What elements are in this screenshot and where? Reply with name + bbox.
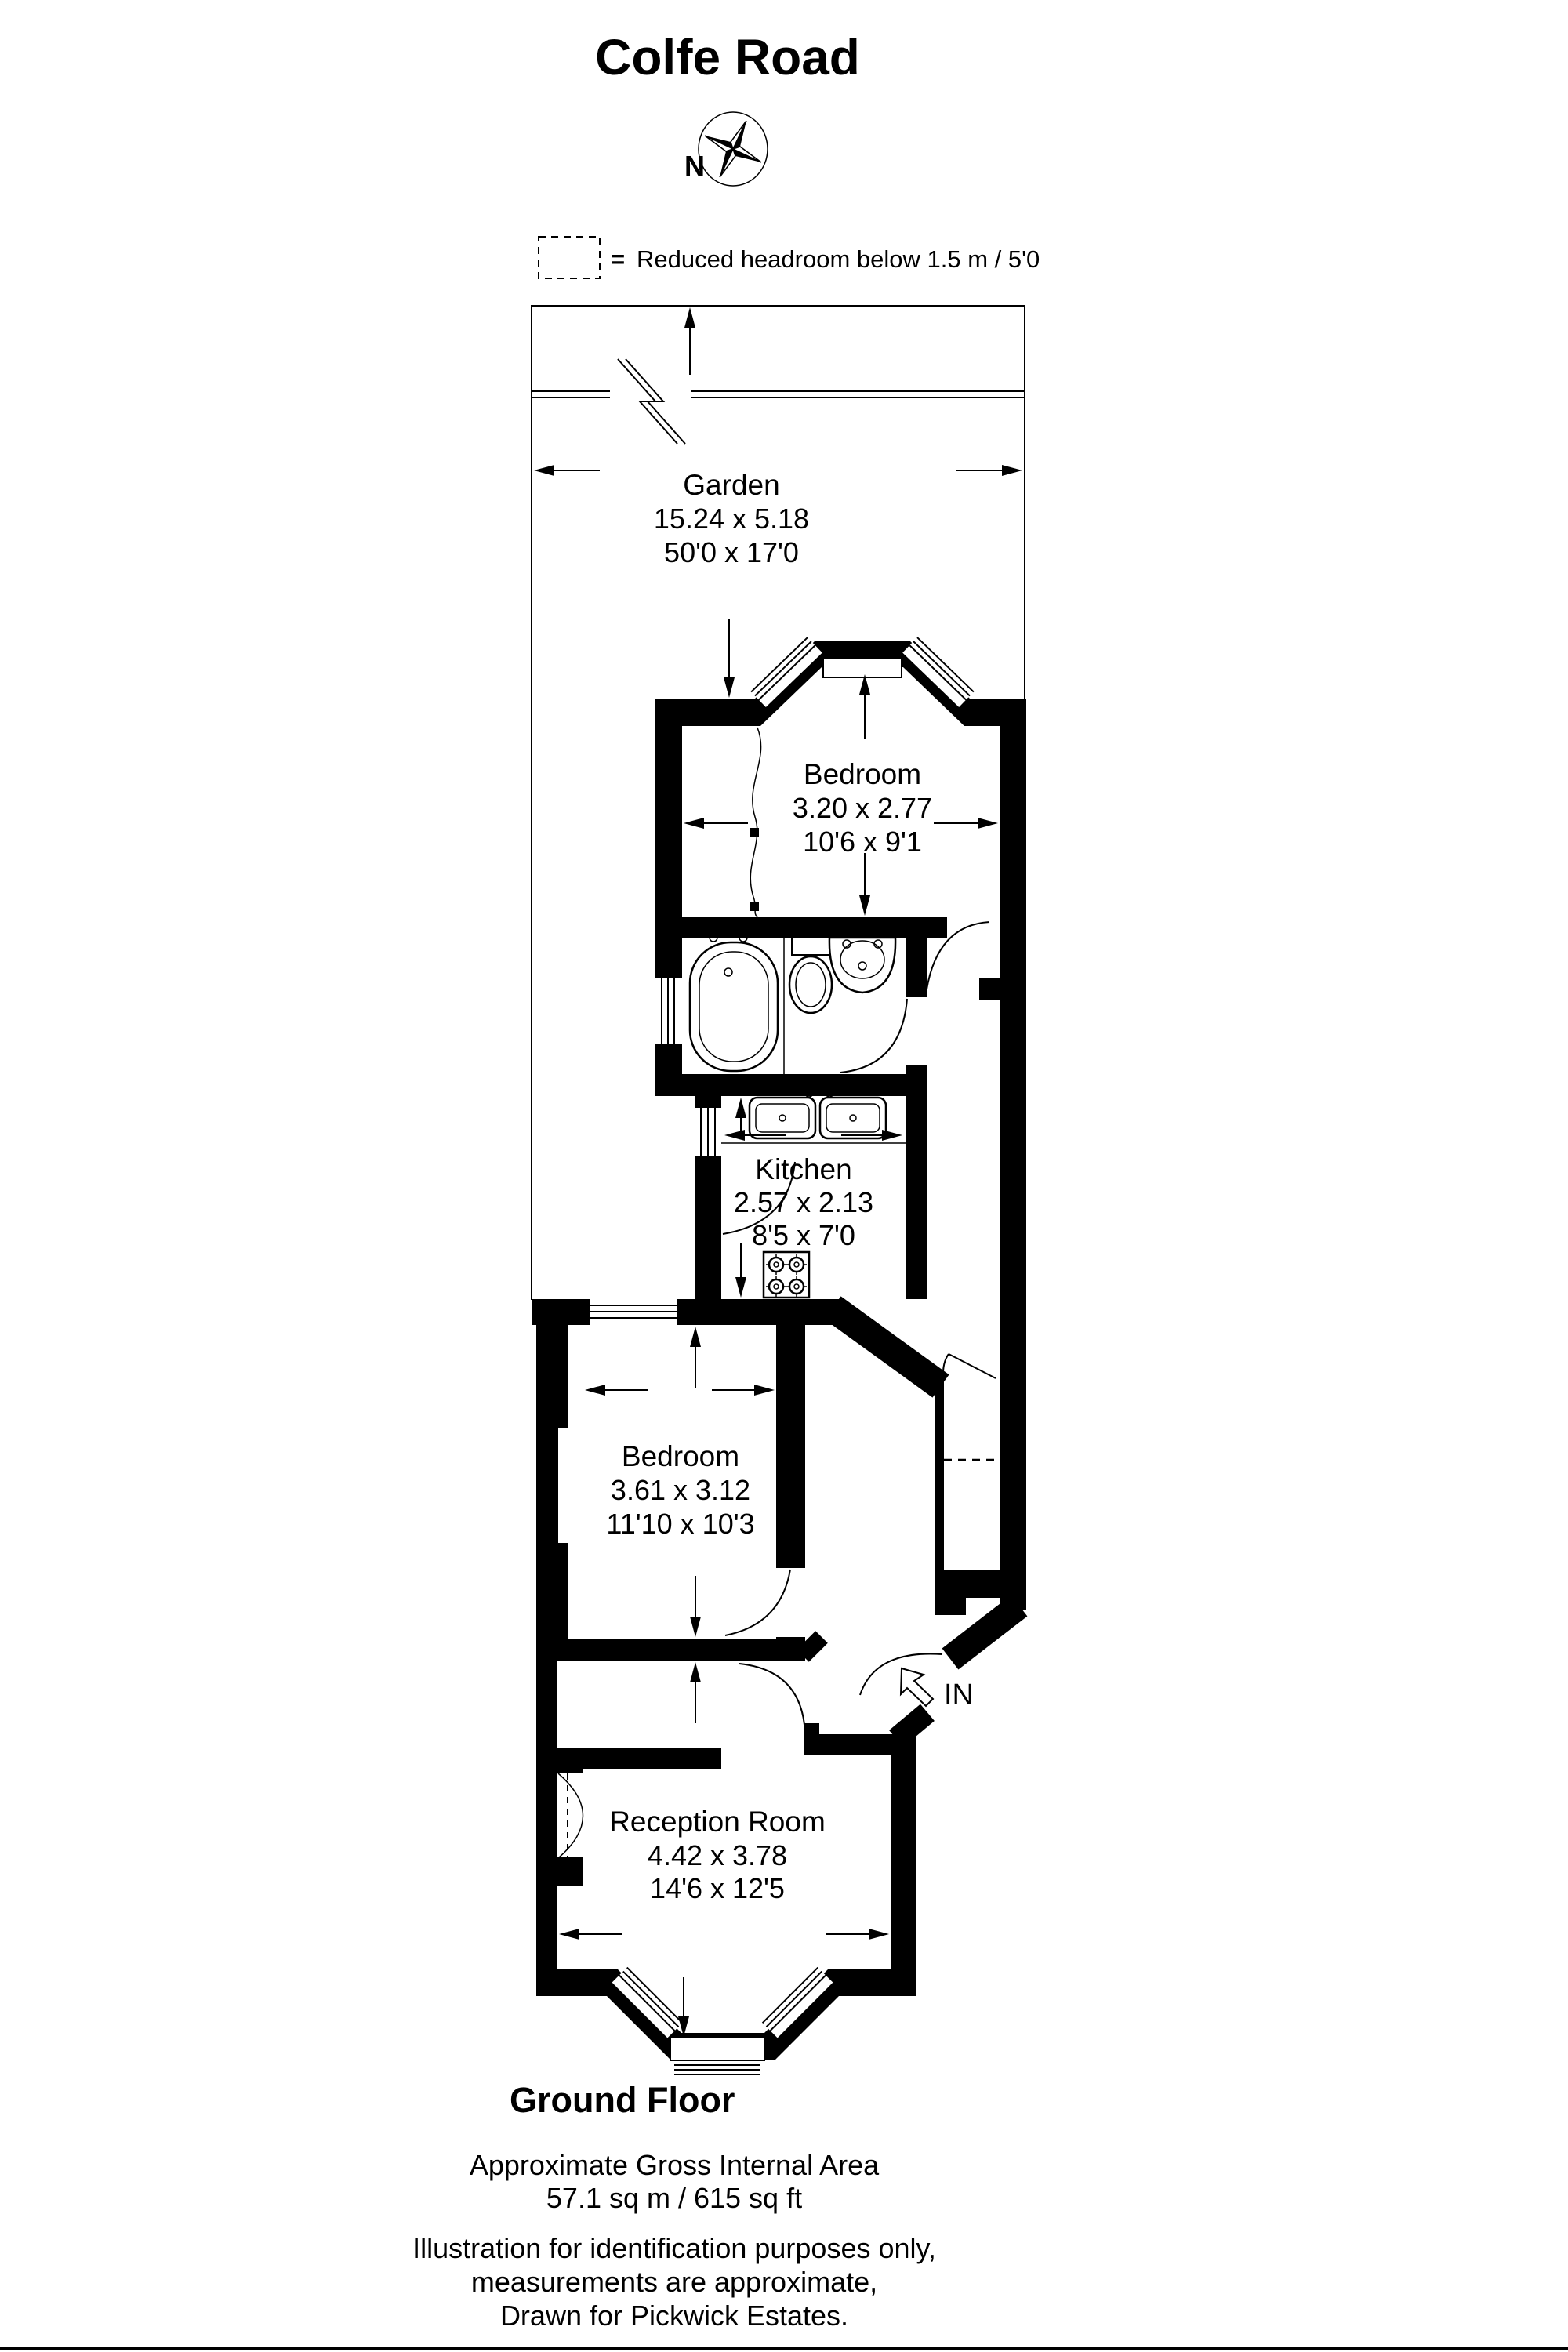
room-dim-imperial: 14'6 x 12'5 — [650, 1872, 785, 1904]
disclaimer-line2: measurements are approximate, — [471, 2266, 877, 2298]
room-dim-imperial: 50'0 x 17'0 — [664, 536, 799, 568]
wall-bathroom-bottom — [655, 1074, 927, 1096]
wash-basin — [829, 938, 895, 993]
footer: Ground Floor Approximate Gross Internal … — [0, 2080, 1568, 2349]
wall-bedroom2-bottom — [536, 1639, 805, 1661]
compass-north-label: N — [684, 150, 705, 182]
wall-reception-left — [536, 1769, 557, 1969]
bay-window-top-centre — [823, 646, 902, 677]
header: Colfe Road N = Reduced headroom below 1.… — [539, 29, 1040, 278]
entrance-label: IN — [944, 1679, 974, 1711]
room-dim-metric: 15.24 x 5.18 — [654, 503, 809, 535]
wall-cupboard-left — [935, 1378, 944, 1570]
legend: = Reduced headroom below 1.5 m / 5'0 — [539, 237, 1040, 278]
chimney-breast-top — [557, 1748, 583, 1773]
bedroom1-label: Bedroom 3.20 x 2.77 10'6 x 9'1 — [793, 758, 932, 858]
floor-plan: Colfe Road N = Reduced headroom below 1.… — [0, 0, 1568, 2352]
entrance: IN — [901, 1668, 974, 1711]
cupboard-door — [943, 1354, 996, 1378]
room-label: Kitchen — [755, 1153, 851, 1185]
room-dim-metric: 3.20 x 2.77 — [793, 792, 932, 824]
wall-kitchen-right — [906, 1080, 927, 1299]
kitchen-label: Kitchen 2.57 x 2.13 8'5 x 7'0 — [734, 1153, 873, 1251]
wall-reception-right — [891, 1734, 916, 1969]
disclaimer-line1: Illustration for identification purposes… — [412, 2232, 936, 2264]
fireplace — [558, 1773, 583, 1858]
wall-reception-top-right — [818, 1734, 891, 1755]
floorplan-page: Colfe Road N = Reduced headroom below 1.… — [0, 0, 1568, 2352]
bathroom-door-arc — [840, 999, 907, 1073]
bedroom2-label: Bedroom 3.61 x 3.12 11'10 x 10'3 — [606, 1440, 754, 1540]
room-dim-imperial: 8'5 x 7'0 — [752, 1219, 855, 1251]
legend-text: Reduced headroom below 1.5 m / 5'0 — [637, 245, 1040, 273]
room-dim-imperial: 11'10 x 10'3 — [606, 1508, 754, 1540]
compass-icon: N — [684, 112, 768, 186]
fixtures — [558, 728, 906, 1858]
bathtub — [690, 934, 778, 1071]
reduced-headroom-swatch — [539, 237, 600, 278]
hob — [764, 1252, 809, 1298]
entrance-arrow-icon — [901, 1668, 933, 1706]
wall-kitchen-diagonal — [833, 1308, 941, 1386]
room-dim-metric: 2.57 x 2.13 — [734, 1186, 873, 1218]
legend-equals: = — [611, 245, 625, 273]
garden-boundary — [532, 306, 1025, 1300]
garden-fence — [532, 391, 1025, 397]
page-title: Colfe Road — [595, 29, 860, 85]
disclaimer-line3: Drawn for Pickwick Estates. — [500, 2299, 848, 2332]
wardrobe-line — [750, 728, 761, 917]
room-label: Bedroom — [622, 1440, 739, 1472]
bedroom2-window — [590, 1299, 677, 1325]
floor-label: Ground Floor — [510, 2080, 735, 2120]
wall-bathroom-top — [682, 917, 947, 938]
chimney-breast-bottom — [557, 1857, 583, 1886]
room-label: Garden — [683, 469, 779, 501]
area-line2: 57.1 sq m / 615 sq ft — [546, 2182, 802, 2214]
room-dim-imperial: 10'6 x 9'1 — [803, 826, 922, 858]
garden: Garden 15.24 x 5.18 50'0 x 17'0 — [532, 306, 1025, 1300]
area-line1: Approximate Gross Internal Area — [470, 2149, 880, 2181]
bathroom-window — [655, 978, 682, 1044]
toilet — [789, 938, 832, 1013]
door-jamb — [979, 978, 1000, 1000]
room-dim-metric: 4.42 x 3.78 — [648, 1839, 787, 1871]
reception-label: Reception Room 4.42 x 3.78 14'6 x 12'5 — [609, 1806, 826, 1904]
room-label: Reception Room — [609, 1806, 826, 1838]
room-label: Bedroom — [804, 758, 921, 790]
wall-bathroom-right — [906, 938, 927, 997]
reception-door-arc — [739, 1664, 804, 1725]
wall-right-exterior — [1000, 699, 1026, 1610]
room-dim-metric: 3.61 x 3.12 — [611, 1474, 750, 1506]
kitchen-window — [695, 1108, 721, 1156]
bay-window-bottom-centre — [670, 2037, 764, 2074]
